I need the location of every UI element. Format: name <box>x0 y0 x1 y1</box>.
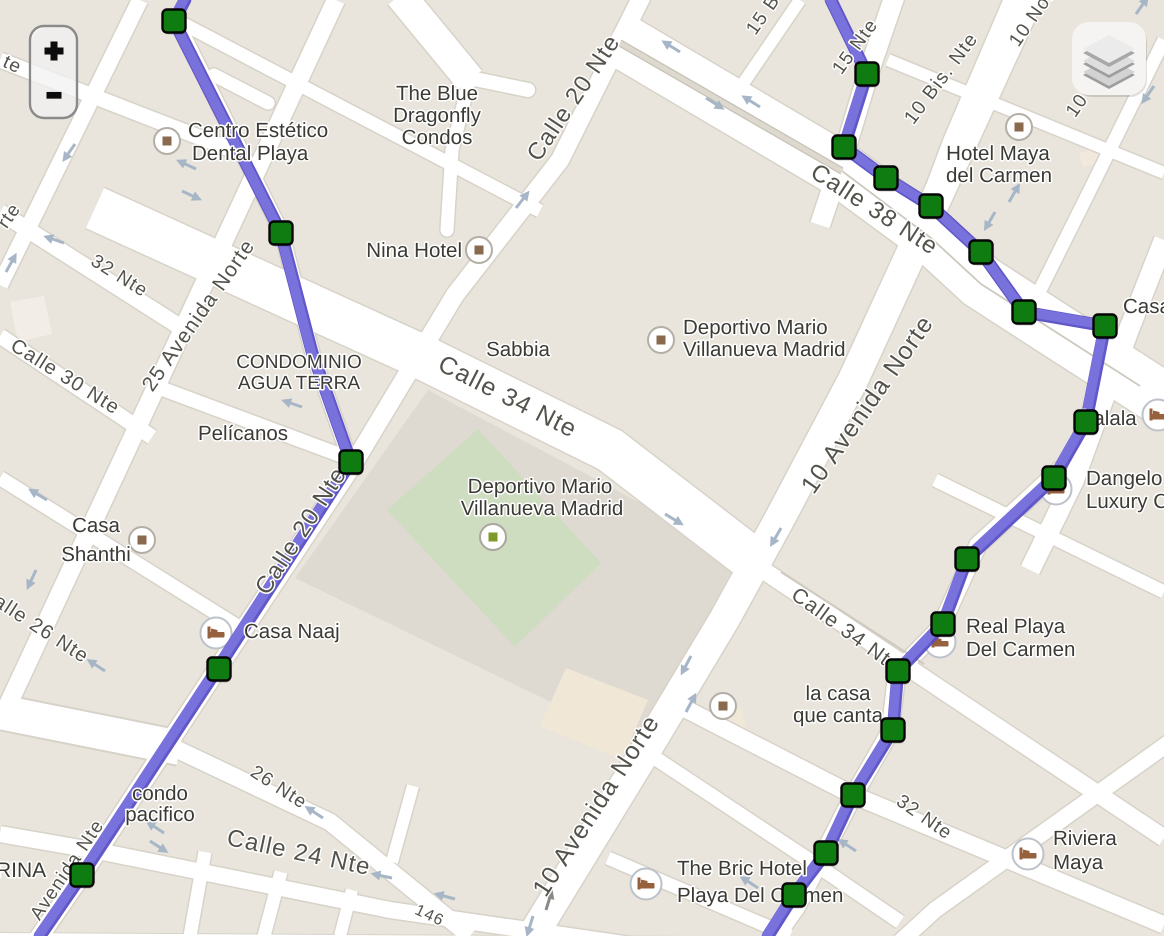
svg-text:Deportivo Mario: Deportivo Mario <box>683 316 828 339</box>
svg-text:Dangelo: Dangelo <box>1086 467 1162 490</box>
svg-text:Riviera: Riviera <box>1053 827 1117 850</box>
svg-text:Deportivo Mario: Deportivo Mario <box>468 475 613 498</box>
svg-text:Casa Naaj: Casa Naaj <box>244 620 340 643</box>
svg-text:RINA: RINA <box>0 859 46 882</box>
svg-text:The Blue: The Blue <box>396 82 478 105</box>
svg-text:Villanueva Madrid: Villanueva Madrid <box>683 338 846 361</box>
svg-text:Casa: Casa <box>1123 295 1164 318</box>
svg-text:Centro Estético: Centro Estético <box>188 119 328 142</box>
svg-text:que canta: que canta <box>793 704 884 727</box>
svg-text:Maya: Maya <box>1053 851 1104 874</box>
svg-text:Playa Del Carmen: Playa Del Carmen <box>677 884 843 907</box>
svg-text:Sabbia: Sabbia <box>486 338 550 361</box>
svg-text:condo: condo <box>132 782 188 805</box>
svg-text:Casa: Casa <box>72 514 120 537</box>
svg-text:Hotel Maya: Hotel Maya <box>946 142 1050 165</box>
svg-text:Villanueva Madrid: Villanueva Madrid <box>461 497 624 520</box>
svg-text:Dragonfly: Dragonfly <box>393 104 481 127</box>
svg-text:Dental Playa: Dental Playa <box>192 142 309 165</box>
svg-text:Luxury C: Luxury C <box>1086 490 1164 513</box>
svg-text:Del Carmen: Del Carmen <box>966 638 1075 661</box>
svg-text:la casa: la casa <box>806 682 872 705</box>
svg-text:Nina Hotel: Nina Hotel <box>366 239 462 262</box>
svg-text:CONDOMINIO: CONDOMINIO <box>236 352 362 373</box>
svg-text:Real Playa: Real Playa <box>966 615 1066 638</box>
svg-text:AGUA TERRA: AGUA TERRA <box>238 373 360 394</box>
svg-text:Shanthi: Shanthi <box>61 543 131 566</box>
svg-text:pacifico: pacifico <box>125 803 195 826</box>
svg-text:Pelícanos: Pelícanos <box>198 422 288 445</box>
svg-text:The Bric Hotel: The Bric Hotel <box>677 857 807 880</box>
svg-text:Condos: Condos <box>402 126 473 149</box>
svg-text:del Carmen: del Carmen <box>946 164 1052 187</box>
